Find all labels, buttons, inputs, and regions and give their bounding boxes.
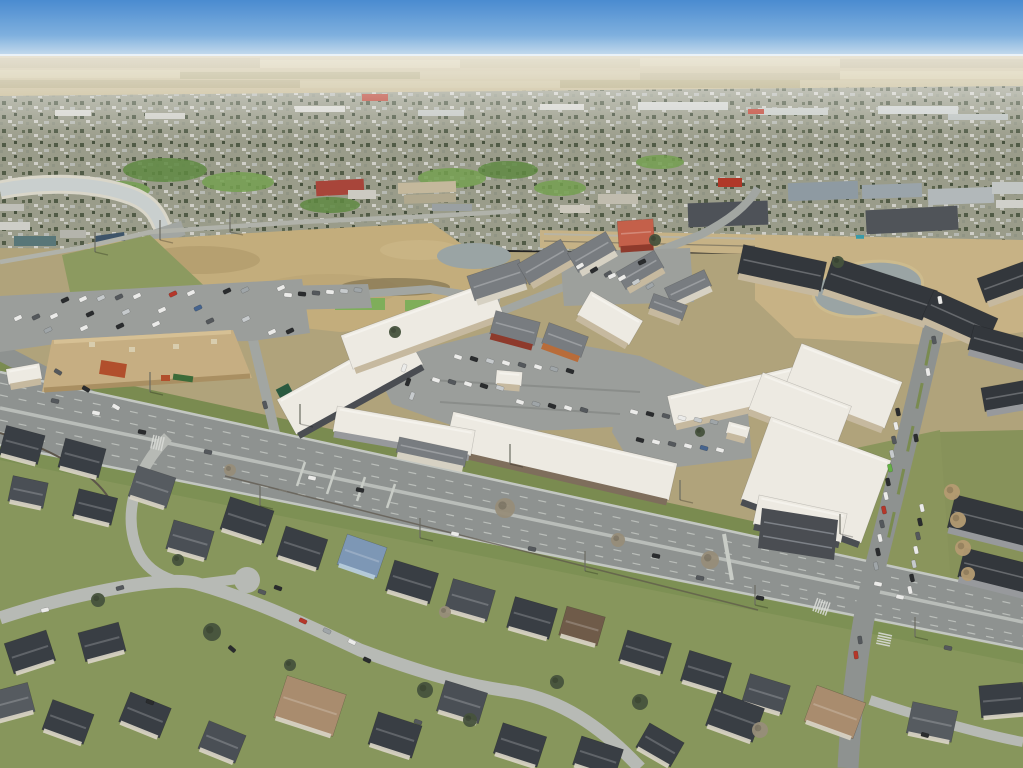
green-patch (534, 180, 586, 196)
tree (495, 498, 515, 518)
distant-building (928, 187, 995, 205)
distant-building (404, 193, 456, 204)
distant-building (788, 181, 859, 201)
house (979, 682, 1023, 720)
distant-building (865, 206, 958, 235)
distant-building (718, 178, 742, 187)
car (312, 291, 320, 296)
car (284, 293, 292, 298)
car (298, 292, 306, 297)
tree (632, 694, 648, 710)
tree (224, 464, 236, 476)
distant-building (560, 205, 590, 213)
tree (752, 722, 768, 738)
tree (950, 512, 966, 528)
rail-car (856, 235, 864, 239)
tree (284, 659, 296, 671)
green-patch (300, 197, 360, 213)
distant-building (0, 222, 30, 230)
cul-de-sac-street (198, 579, 238, 584)
car (326, 290, 334, 295)
store-hvac-unit (173, 344, 179, 349)
car (853, 651, 858, 660)
tree (961, 567, 975, 581)
green-patch (202, 172, 274, 192)
tree (172, 554, 184, 566)
distant-building (14, 236, 56, 246)
distant-building (992, 182, 1023, 194)
store-hvac-unit (129, 347, 135, 352)
cul-de-sac-bulb (234, 567, 260, 593)
tree (695, 427, 705, 437)
green-patch (478, 161, 538, 179)
tree (91, 593, 105, 607)
tree (955, 540, 971, 556)
green-patch (636, 155, 684, 169)
car (354, 288, 362, 293)
distant-building (432, 204, 472, 211)
tree (701, 551, 719, 569)
distant-building (348, 190, 376, 199)
store-hvac-unit (211, 339, 217, 344)
tree (439, 606, 451, 618)
green-patch (123, 158, 207, 182)
aerial-photo (0, 0, 1023, 768)
car (340, 289, 348, 294)
tree (550, 675, 564, 689)
store-hvac-unit (89, 342, 95, 347)
store-accent-small (161, 375, 170, 381)
tree (611, 533, 625, 547)
aerial-photo-canvas (0, 0, 1023, 768)
tree (832, 256, 844, 268)
distant-building (598, 194, 638, 204)
tree (203, 623, 221, 641)
tree (944, 484, 960, 500)
tree (417, 682, 433, 698)
tree (649, 234, 661, 246)
distant-building (996, 200, 1023, 208)
distant-building (0, 204, 24, 211)
car (857, 636, 862, 645)
distant-building (60, 230, 86, 238)
tree (463, 713, 477, 727)
horizon-haze (0, 54, 1023, 140)
distant-building (398, 181, 456, 194)
apartment-building (617, 219, 655, 253)
distant-building (862, 183, 922, 199)
tree (389, 326, 401, 338)
